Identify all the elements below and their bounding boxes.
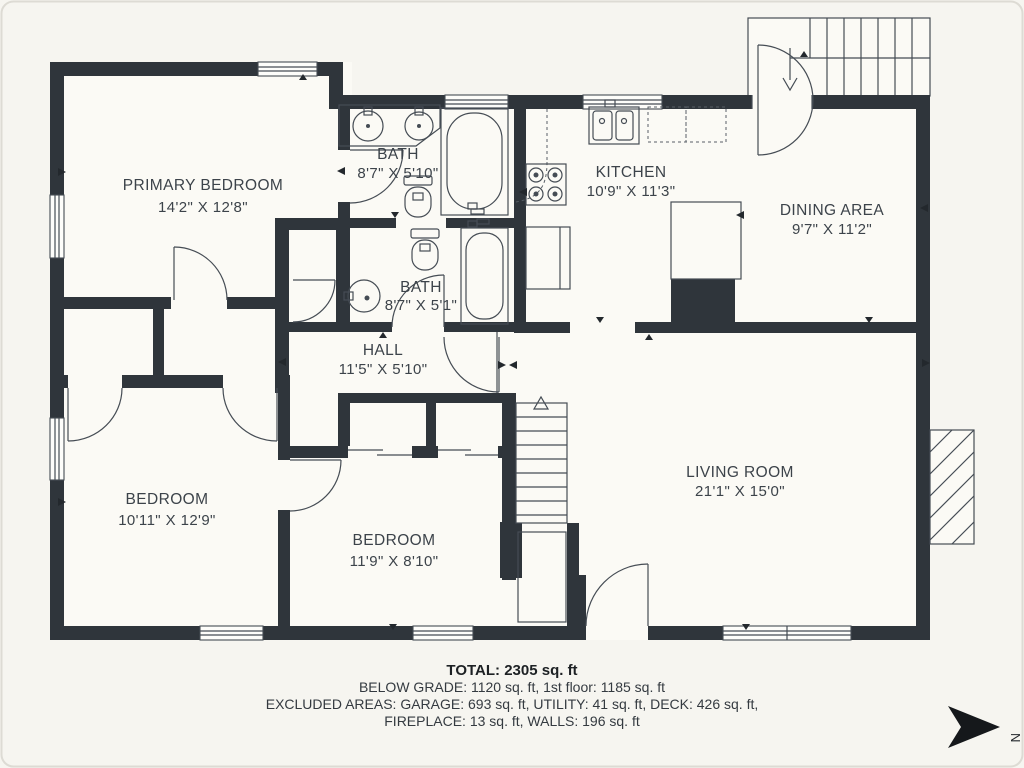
svg-text:10'9" X 11'3": 10'9" X 11'3" bbox=[587, 183, 676, 200]
window bbox=[445, 95, 508, 109]
svg-text:HALL: HALL bbox=[363, 342, 403, 359]
floor-plan: PRIMARY BEDROOM 14'2" X 12'8" BATH 8'7" … bbox=[0, 0, 1024, 768]
svg-text:KITCHEN: KITCHEN bbox=[596, 164, 667, 181]
svg-text:BEDROOM: BEDROOM bbox=[126, 491, 209, 508]
svg-text:BATH: BATH bbox=[400, 279, 442, 296]
window bbox=[50, 418, 64, 480]
deck-staircase bbox=[748, 18, 930, 96]
svg-text:PRIMARY BEDROOM: PRIMARY BEDROOM bbox=[123, 177, 283, 194]
svg-text:21'1" X 15'0": 21'1" X 15'0" bbox=[695, 483, 785, 500]
svg-text:11'5" X 5'10": 11'5" X 5'10" bbox=[339, 361, 428, 378]
excluded-areas-text-2: FIREPLACE: 13 sq. ft, WALLS: 196 sq. ft bbox=[0, 713, 1024, 730]
svg-text:DINING AREA: DINING AREA bbox=[780, 202, 885, 219]
door-threshold bbox=[752, 95, 812, 109]
svg-text:14'2" X 12'8": 14'2" X 12'8" bbox=[158, 199, 248, 216]
svg-text:9'7" X 11'2": 9'7" X 11'2" bbox=[792, 221, 872, 238]
compass-north-label: N bbox=[1008, 733, 1023, 742]
svg-text:8'7" X 5'10": 8'7" X 5'10" bbox=[357, 165, 438, 182]
fireplace bbox=[930, 430, 974, 544]
floor-plan-page: PRIMARY BEDROOM 14'2" X 12'8" BATH 8'7" … bbox=[0, 0, 1024, 768]
svg-text:BEDROOM: BEDROOM bbox=[353, 532, 436, 549]
svg-text:11'9" X 8'10": 11'9" X 8'10" bbox=[350, 553, 439, 570]
svg-text:LIVING ROOM: LIVING ROOM bbox=[686, 464, 794, 481]
total-area-text: TOTAL: 2305 sq. ft bbox=[0, 662, 1024, 679]
floor-area bbox=[50, 62, 930, 640]
svg-text:BATH: BATH bbox=[377, 146, 419, 163]
svg-text:8'7" X 5'1": 8'7" X 5'1" bbox=[385, 297, 458, 314]
excluded-areas-text: EXCLUDED AREAS: GARAGE: 693 sq. ft, UTIL… bbox=[0, 696, 1024, 713]
svg-text:10'11" X 12'9": 10'11" X 12'9" bbox=[118, 512, 216, 529]
window bbox=[413, 626, 473, 640]
window bbox=[258, 62, 317, 76]
area-summary: TOTAL: 2305 sq. ft BELOW GRADE: 1120 sq.… bbox=[0, 662, 1024, 730]
window bbox=[723, 626, 851, 640]
window bbox=[200, 626, 263, 640]
below-grade-text: BELOW GRADE: 1120 sq. ft, 1st floor: 118… bbox=[0, 679, 1024, 696]
window bbox=[50, 195, 64, 258]
